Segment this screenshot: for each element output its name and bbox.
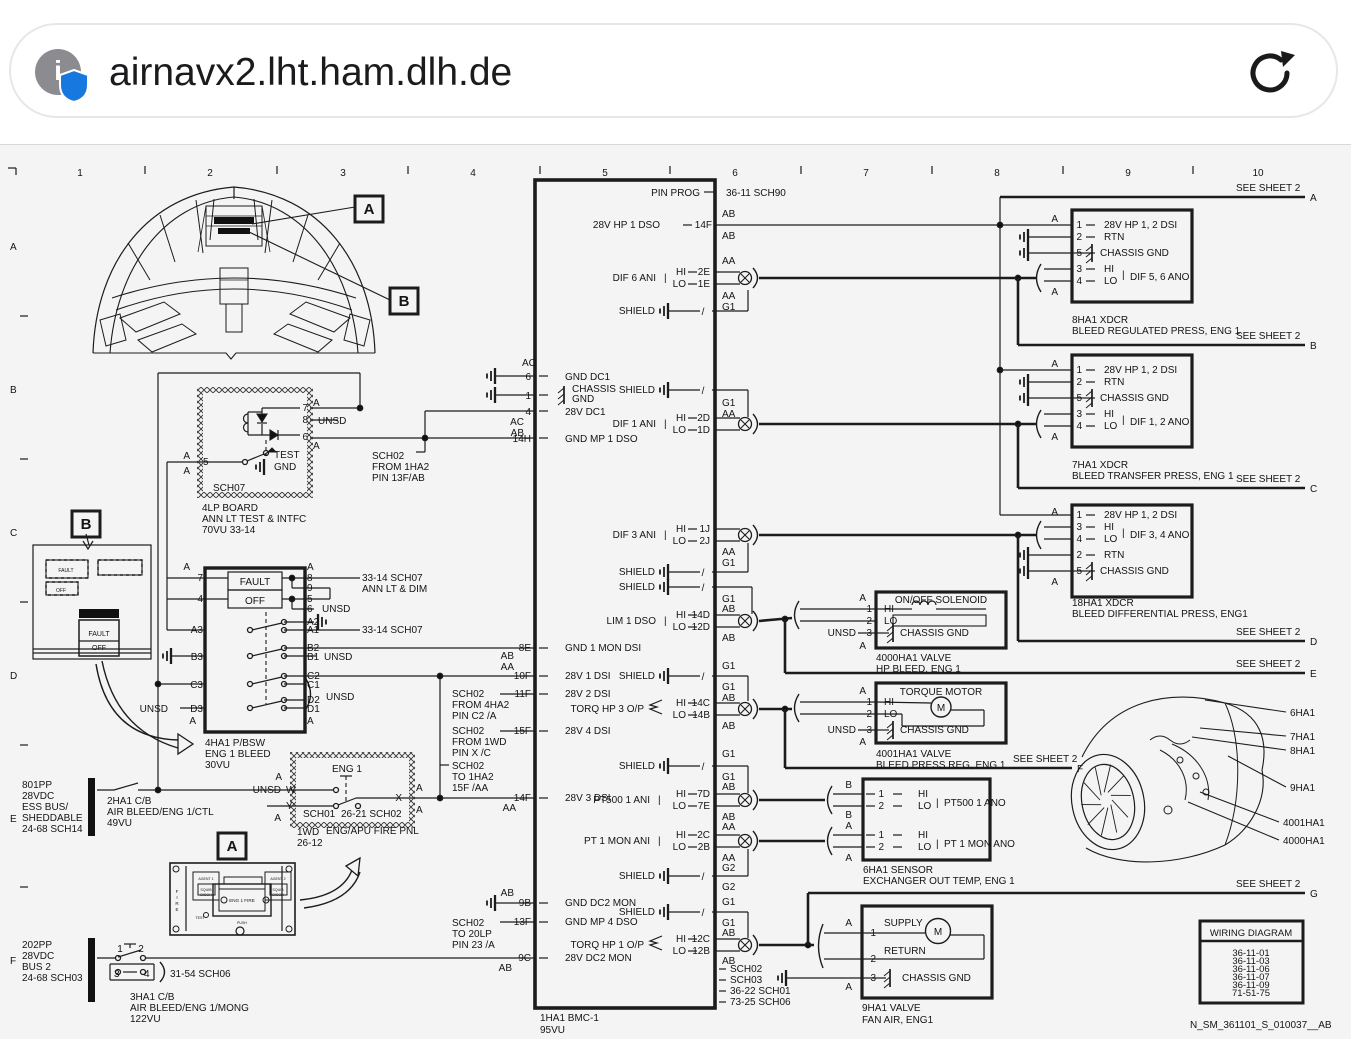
diagram-label: 4 xyxy=(470,168,476,179)
diagram-label: B xyxy=(1310,341,1317,352)
diagram-label: A xyxy=(859,686,866,697)
diagram-label: HI xyxy=(918,830,928,841)
diagram-label: 1 xyxy=(866,697,872,708)
diagram-label: LO xyxy=(673,946,687,957)
diagram-label: UNSD xyxy=(253,785,281,796)
diagram-label: HI xyxy=(676,524,686,535)
diagram-label: 26-12 xyxy=(297,838,323,849)
diagram-label: A xyxy=(1310,193,1317,204)
diagram-label: A1 xyxy=(307,625,320,636)
diagram-label: A xyxy=(307,716,314,727)
diagram-label: 1 xyxy=(525,391,531,402)
diagram-label: 30VU xyxy=(205,760,230,771)
diagram-label: 5 xyxy=(203,457,209,468)
diagram-label: DIF 1, 2 ANO xyxy=(1130,417,1190,428)
diagram-label: FAULT xyxy=(88,631,110,638)
diagram-label: 12D xyxy=(692,622,710,633)
diagram-label: B xyxy=(845,810,852,821)
diagram-label: 2 xyxy=(1076,232,1082,243)
diagram-label: SEE SHEET 2 xyxy=(1236,659,1301,670)
diagram-label: HI xyxy=(676,789,686,800)
diagram-label: 6 xyxy=(307,604,313,615)
diagram-label: SHIELD xyxy=(619,871,655,882)
diagram-label: LIM 1 DSO xyxy=(607,616,657,627)
diagram-label: F xyxy=(1077,764,1083,775)
diagram-label: 14F xyxy=(695,220,712,231)
diagram-label: LO xyxy=(918,801,932,812)
diagram-label: 801PP xyxy=(22,780,52,791)
diagram-label: SCH02 xyxy=(730,964,763,975)
diagram-label: AB xyxy=(722,693,736,704)
diagram-label: 2HA1 C/B xyxy=(107,796,152,807)
diagram-label: AB xyxy=(722,633,736,644)
diagram-label: 1 xyxy=(117,944,123,955)
diagram-label: SEE SHEET 2 xyxy=(1236,331,1301,342)
diagram-label: A xyxy=(416,783,423,794)
diagram-label: 1 xyxy=(1076,220,1082,231)
diagram-label: A xyxy=(1051,214,1058,225)
diagram-label: 9HA1 xyxy=(1290,783,1315,794)
diagram-label: GND xyxy=(274,462,296,473)
diagram-label: AA xyxy=(722,822,736,833)
diagram-label: CHASSIS GND xyxy=(1100,566,1169,577)
diagram-label: BLEED TRANSFER PRESS, ENG 1 xyxy=(1072,471,1234,482)
diagram-label: BLEED DIFFERENTIAL PRESS, ENG1 xyxy=(1072,609,1248,620)
diagram-label: D xyxy=(1310,637,1317,648)
diagram-label: PT 1 MON ANO xyxy=(944,839,1015,850)
diagram-label: | xyxy=(936,798,939,809)
diagram-label: SCH02 xyxy=(452,918,485,929)
diagram-label: F xyxy=(10,956,16,967)
diagram-label: LO xyxy=(1104,534,1118,545)
diagram-label: DIF 6 ANI xyxy=(613,273,656,284)
diagram-label: G1 xyxy=(722,558,736,569)
diagram-label: SHIELD xyxy=(619,671,655,682)
diagram-label: RTN xyxy=(1104,377,1124,388)
diagram-label: SHIELD xyxy=(619,761,655,772)
diagram-label: B3 xyxy=(191,652,204,663)
diagram-label: DIF 3, 4 ANO xyxy=(1130,530,1190,541)
diagram-label: 2 xyxy=(866,709,872,720)
diagram-label: 28VDC xyxy=(22,951,54,962)
diagram-label: HI xyxy=(1104,522,1114,533)
diagram-label: 8 xyxy=(302,415,308,426)
diagram-label: 8 xyxy=(994,168,1000,179)
diagram-label: ANN LT TEST & INTFC xyxy=(202,514,306,525)
diagram-label: M xyxy=(937,703,945,714)
diagram-label: LO xyxy=(1104,421,1118,432)
diagram-label: 70VU 33-14 xyxy=(202,525,256,536)
diagram-label: SEE SHEET 2 xyxy=(1236,879,1301,890)
diagram-label: UNSD xyxy=(326,692,354,703)
url-bar[interactable]: i airnavx2.lht.ham.dlh.de xyxy=(9,23,1338,118)
diagram-label: SUPPLY xyxy=(884,918,923,929)
diagram-label: HI xyxy=(918,789,928,800)
diagram-label: HI xyxy=(676,830,686,841)
diagram-label: 1WD xyxy=(297,827,319,838)
diagram-label: SCH02 xyxy=(452,726,485,737)
reload-icon[interactable] xyxy=(1243,45,1299,101)
diagram-label: 7 xyxy=(197,573,203,584)
diagram-label: DISCH xyxy=(272,893,284,897)
diagram-label: 3 xyxy=(114,969,120,980)
diagram-label: 5 xyxy=(1076,248,1082,259)
diagram-label: SCH03 xyxy=(730,975,763,986)
diagram-label: SCH07 xyxy=(213,483,246,494)
diagram-label: AA xyxy=(722,409,736,420)
diagram-label: | xyxy=(658,836,661,847)
diagram-label: 2B xyxy=(698,842,711,853)
diagram-label: 1E xyxy=(698,279,711,290)
diagram-label: SHIELD xyxy=(619,907,655,918)
diagram-label: X xyxy=(395,793,402,804)
diagram-label: | xyxy=(658,795,661,806)
diagram-label: HI xyxy=(676,267,686,278)
diagram-label: SQUIB xyxy=(200,888,212,892)
diagram-label: 28V HP 1, 2 DSI xyxy=(1104,510,1177,521)
diagram-label: 4LP BOARD xyxy=(202,503,258,514)
diagram-label: 2 xyxy=(866,616,872,627)
diagram-label: SEE SHEET 2 xyxy=(1013,754,1078,765)
diagram-label: 28V 2 DSI xyxy=(565,689,611,700)
diagram-label: PIN X /C xyxy=(452,748,491,759)
diagram-label: 10 xyxy=(1252,168,1264,179)
diagram-label: 7HA1 xyxy=(1290,732,1315,743)
diagram-label: RTN xyxy=(1104,550,1124,561)
diagram-label: 14B xyxy=(692,710,710,721)
diagram-label: SEE SHEET 2 xyxy=(1236,183,1301,194)
diagram-label: 2D xyxy=(697,413,710,424)
url-text[interactable]: airnavx2.lht.ham.dlh.de xyxy=(109,25,512,120)
diagram-label: 73-25 SCH06 xyxy=(730,997,791,1008)
diagram-label: SCH02 xyxy=(372,451,405,462)
diagram-label: 7 xyxy=(863,168,869,179)
diagram-label: TORQUE MOTOR xyxy=(900,687,982,698)
diagram-label: UNSD xyxy=(828,628,856,639)
diagram-label: A xyxy=(845,918,852,929)
diagram-label: 4001HA1 xyxy=(1283,818,1325,829)
diagram-label: ESS BUS/ xyxy=(22,802,68,813)
diagram-label: 2 xyxy=(870,954,876,965)
diagram-label: A xyxy=(845,821,852,832)
diagram-label: W xyxy=(286,785,296,796)
diagram-label: A xyxy=(859,737,866,748)
diagram-label: SQUIB xyxy=(272,888,284,892)
diagram-label: 1 xyxy=(1076,510,1082,521)
diagram-label: 1 xyxy=(866,604,872,615)
diagram-label: A xyxy=(183,451,190,462)
diagram-label: RTN xyxy=(1104,232,1124,243)
diagram-label: AB xyxy=(722,209,736,220)
diagram-label: SHIELD xyxy=(619,567,655,578)
diagram-label: FAN AIR, ENG1 xyxy=(862,1015,934,1026)
diagram-label: G1 xyxy=(722,661,736,672)
diagram-label: B xyxy=(845,780,852,791)
diagram-label: UNSD xyxy=(322,604,350,615)
diagram-label: G1 xyxy=(722,897,736,908)
browser-toolbar: i airnavx2.lht.ham.dlh.de xyxy=(0,0,1351,145)
diagram-label: A xyxy=(845,853,852,864)
diagram-label: UNSD xyxy=(828,725,856,736)
diagram-label: 10F xyxy=(514,671,531,682)
diagram-label: DISCH xyxy=(200,893,212,897)
diagram-label: SEE SHEET 2 xyxy=(1236,474,1301,485)
diagram-label: HI xyxy=(676,698,686,709)
diagram-label: 28V DC1 xyxy=(565,407,606,418)
diagram-label: A xyxy=(227,838,238,855)
diagram-label: LO xyxy=(673,710,687,721)
diagram-label: HI xyxy=(676,934,686,945)
diagram-label: D3 xyxy=(190,704,203,715)
diagram-label: A xyxy=(1051,577,1058,588)
diagram-label: 4 xyxy=(197,594,203,605)
diagram-label: AB xyxy=(722,231,736,242)
diagram-label: 2E xyxy=(698,267,711,278)
diagram-label: 2 xyxy=(1076,550,1082,561)
diagram-label: 6 xyxy=(732,168,738,179)
diagram-label: 14H xyxy=(513,434,531,445)
diagram-label: BLEED PRESS REG, ENG 1 xyxy=(876,760,1006,771)
diagram-label: AA xyxy=(503,803,517,814)
diagram-label: 28V HP 1, 2 DSI xyxy=(1104,365,1177,376)
diagram-label: SCH02 xyxy=(452,761,485,772)
diagram-label: | xyxy=(664,530,667,541)
diagram-label: 3 xyxy=(1076,522,1082,533)
diagram-label: GND MP 4 DSO xyxy=(565,917,638,928)
diagram-label: A xyxy=(1051,507,1058,518)
diagram-label: DIF 5, 6 ANO xyxy=(1130,272,1190,283)
diagram-label: | xyxy=(936,839,939,850)
diagram-label: 11F xyxy=(515,689,532,700)
diagram-label: AA xyxy=(722,547,736,558)
diagram-label: 7HA1 XDCR xyxy=(1072,460,1128,471)
diagram-label: / xyxy=(702,307,705,318)
diagram-label: B xyxy=(399,293,410,310)
diagram-label: PIN PROG xyxy=(651,188,700,199)
diagram-labels: 12345678910ABCDEFSEE SHEET 2ASEE SHEET 2… xyxy=(10,168,1332,1036)
diagram-label: FROM 1HA2 xyxy=(372,462,430,473)
diagram-label: 24-68 SCH14 xyxy=(22,824,83,835)
diagram-label: WIRING DIAGRAM xyxy=(1210,928,1292,939)
diagram-label: / xyxy=(702,568,705,579)
diagram-label: 14C xyxy=(692,698,710,709)
diagram-label: TO 1HA2 xyxy=(452,772,494,783)
diagram-label: AB xyxy=(722,928,736,939)
diagram-label: 12B xyxy=(692,946,710,957)
diagram-label: 3 xyxy=(866,628,872,639)
diagram-label: HI xyxy=(884,604,894,615)
diagram-label: 2 xyxy=(878,842,884,853)
diagram-label: A xyxy=(189,716,196,727)
diagram-label: | xyxy=(664,616,667,627)
privacy-shield-icon xyxy=(58,69,90,103)
diagram-label: AIR BLEED/ENG 1/MONG xyxy=(130,1003,249,1014)
diagram-label: 28VDC xyxy=(22,791,54,802)
diagram-label: AB xyxy=(499,963,513,974)
diagram-label: ENG 1 xyxy=(332,764,362,775)
diagram-label: LO xyxy=(673,622,687,633)
diagram-label: 9C xyxy=(518,953,531,964)
diagram-label: 2 xyxy=(138,944,144,955)
diagram-label: 36-11 SCH90 xyxy=(726,188,786,199)
diagram-label: 7E xyxy=(698,801,711,812)
diagram-label: / xyxy=(702,762,705,773)
diagram-label: 1 xyxy=(870,928,876,939)
diagram-label: ANN LT & DIM xyxy=(362,584,427,595)
diagram-label: 15F xyxy=(514,726,531,737)
diagram-label: ENG 1 FIRE xyxy=(229,898,255,903)
diagram-label: AB xyxy=(722,721,736,732)
diagram-label: FAULT xyxy=(58,568,73,574)
diagram-label: EXCHANGER OUT TEMP, ENG 1 xyxy=(863,876,1015,887)
diagram-label: B xyxy=(81,516,92,533)
diagram-label: LO xyxy=(673,425,687,436)
wiring-diagram-canvas: 12345678910ABCDEFSEE SHEET 2ASEE SHEET 2… xyxy=(0,145,1351,1039)
diagram-label: AA xyxy=(501,662,515,673)
diagram-label: AB xyxy=(501,888,515,899)
diagram-label: 3HA1 C/B xyxy=(130,992,175,1003)
diagram-label: BLEED REGULATED PRESS, ENG 1 xyxy=(1072,326,1241,337)
diagram-label: 3 xyxy=(340,168,346,179)
diagram-label: GND 1 MON DSI xyxy=(565,643,641,654)
diagram-label: 4000HA1 VALVE xyxy=(876,653,952,664)
diagram-label: A xyxy=(10,242,17,253)
diagram-label: BUS 2 xyxy=(22,962,51,973)
diagram-label: 4000HA1 xyxy=(1283,836,1325,847)
diagram-label: A xyxy=(183,466,190,477)
diagram-label: AB xyxy=(722,782,736,793)
diagram-label: DIF 3 ANI xyxy=(613,530,656,541)
diagram-label: A3 xyxy=(191,625,204,636)
diagram-label: A xyxy=(845,982,852,993)
diagram-label: Y xyxy=(286,801,293,812)
diagram-label: 2 xyxy=(1076,377,1082,388)
diagram-label: 6 xyxy=(302,432,308,443)
diagram-label: AA xyxy=(722,256,736,267)
diagram-label: N_SM_361101_S_010037__AB xyxy=(1190,1020,1332,1031)
diagram-label: A xyxy=(275,772,282,783)
diagram-label: A xyxy=(307,562,314,573)
diagram-label: A xyxy=(183,562,190,573)
diagram-label: HI xyxy=(884,697,894,708)
diagram-label: 7 xyxy=(302,403,308,414)
diagram-label: AB xyxy=(722,604,736,615)
diagram-label: 6 xyxy=(525,372,531,383)
diagram-label: | xyxy=(1122,270,1125,281)
diagram-label: 24-68 SCH03 xyxy=(22,973,83,984)
diagram-label: | xyxy=(664,273,667,284)
diagram-label: 14D xyxy=(692,610,710,621)
diagram-label: 4001HA1 VALVE xyxy=(876,749,952,760)
diagram-label: A xyxy=(313,398,320,409)
diagram-label: E xyxy=(10,814,17,825)
diagram-label: G xyxy=(1310,889,1318,900)
diagram-label: 122VU xyxy=(130,1014,161,1025)
diagram-label: 9B xyxy=(519,898,532,909)
diagram-label: 9HA1 VALVE xyxy=(862,1003,921,1014)
diagram-label: 12C xyxy=(692,934,710,945)
diagram-label: ENG 1 BLEED xyxy=(84,612,114,617)
diagram-label: PT500 1 ANO xyxy=(944,798,1006,809)
diagram-label: ENG/APU FIRE PNL xyxy=(326,826,419,837)
diagram-label: 33-14 SCH07 xyxy=(362,625,423,636)
diagram-label: B1 xyxy=(307,652,320,663)
diagram-label: 4HA1 P/BSW xyxy=(205,738,266,749)
diagram-label: PIN 23 /A xyxy=(452,940,495,951)
diagram-label: AA xyxy=(722,291,736,302)
diagram-label: 5 xyxy=(1076,393,1082,404)
diagram-label: ENG 1 BLEED xyxy=(205,749,271,760)
diagram-label: SHIELD xyxy=(619,306,655,317)
diagram-label: | xyxy=(1122,415,1125,426)
diagram-label: 18HA1 XDCR xyxy=(1072,598,1134,609)
diagram-label: LO xyxy=(673,842,687,853)
diagram-label: TEST xyxy=(195,916,205,920)
diagram-label: E xyxy=(1310,669,1317,680)
diagram-label: LO xyxy=(918,842,932,853)
diagram-geometry xyxy=(8,166,1305,1008)
diagram-label: 1HA1 BMC-1 xyxy=(540,1013,599,1024)
diagram-label: B xyxy=(10,385,17,396)
diagram-label: 3 xyxy=(1076,264,1082,275)
diagram-label: 4 xyxy=(1076,534,1082,545)
diagram-label: GND DC1 xyxy=(565,372,610,383)
diagram-label: 2 xyxy=(878,801,884,812)
diagram-label: 6HA1 SENSOR xyxy=(863,865,933,876)
diagram-label: A xyxy=(313,441,320,452)
diagram-label: G2 xyxy=(722,882,736,893)
diagram-label: PT 1 MON ANI xyxy=(584,836,650,847)
diagram-label: 95VU xyxy=(540,1025,565,1036)
diagram-label: 4 xyxy=(1076,276,1082,287)
diagram-label: F xyxy=(176,889,179,894)
diagram-label: M xyxy=(934,927,942,938)
diagram-label: 5 xyxy=(1076,566,1082,577)
diagram-label: HI xyxy=(676,610,686,621)
diagram-label: / xyxy=(702,583,705,594)
diagram-label: 14F xyxy=(514,793,531,804)
diagram-label: A xyxy=(364,201,375,218)
diagram-label: SHIELD xyxy=(619,582,655,593)
diagram-label: LO xyxy=(673,536,687,547)
diagram-label: 9 xyxy=(1125,168,1131,179)
diagram-label: 202PP xyxy=(22,940,52,951)
diagram-label: 1 xyxy=(77,168,83,179)
diagram-label: 6HA1 xyxy=(1290,708,1315,719)
diagram-label: 8HA1 xyxy=(1290,746,1315,757)
diagram-label: 33-14 SCH07 xyxy=(362,573,423,584)
diagram-label: SEE SHEET 2 xyxy=(1236,627,1301,638)
diagram-label: 1D xyxy=(697,425,710,436)
diagram-label: G1 xyxy=(722,749,736,760)
diagram-label: 8E xyxy=(519,643,532,654)
diagram-label: DIF 1 ANI xyxy=(613,419,656,430)
diagram-label: SHIELD xyxy=(619,385,655,396)
diagram-label: PIN 13F/AB xyxy=(372,473,425,484)
diagram-label: A xyxy=(1051,287,1058,298)
diagram-label: 3 xyxy=(866,725,872,736)
diagram-label: 3 xyxy=(870,973,876,984)
diagram-label: CHASSIS GND xyxy=(1100,393,1169,404)
diagram-label: R xyxy=(175,901,179,906)
diagram-label: 4 xyxy=(1076,421,1082,432)
diagram-label: C3 xyxy=(190,680,203,691)
diagram-label: LO xyxy=(884,616,898,627)
diagram-label: 28V 1 DSI xyxy=(565,671,611,682)
diagram-label: 13F xyxy=(514,917,531,928)
diagram-label: 7D xyxy=(697,789,710,800)
diagram-label: CHASSIS GND xyxy=(1100,248,1169,259)
